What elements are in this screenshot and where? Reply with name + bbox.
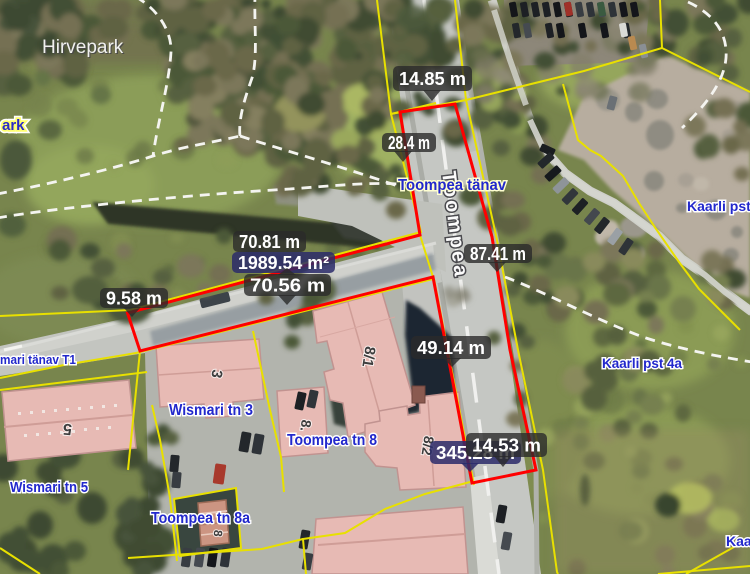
svg-text:Hirvepark: Hirvepark [42, 37, 124, 58]
svg-text:Toompea tn 8: Toompea tn 8 [287, 432, 377, 449]
svg-text:Kaarli pst 4a: Kaarli pst 4a [602, 355, 682, 371]
svg-text:Toompea tänav: Toompea tänav [398, 177, 506, 194]
svg-text:Wismari tn 5: Wismari tn 5 [10, 479, 88, 496]
svg-text:28.4 m: 28.4 m [388, 133, 430, 153]
svg-text:Wismari tn 3: Wismari tn 3 [169, 402, 253, 419]
svg-text:5: 5 [62, 420, 72, 438]
svg-text:14.53 m: 14.53 m [472, 436, 541, 456]
svg-text:14.85 m: 14.85 m [399, 69, 466, 89]
svg-text:ark: ark [2, 117, 25, 134]
svg-text:Kaarli ps: Kaarli ps [726, 533, 750, 549]
svg-text:70.81 m: 70.81 m [239, 232, 300, 252]
svg-text:1989.54 m²: 1989.54 m² [238, 253, 329, 273]
svg-text:Kaarli pst 4: Kaarli pst 4 [687, 198, 750, 214]
svg-text:9.58 m: 9.58 m [106, 289, 162, 309]
svg-text:mari tänav T1: mari tänav T1 [0, 352, 76, 367]
svg-text:8.: 8. [297, 419, 314, 433]
svg-text:49.14 m: 49.14 m [417, 338, 485, 358]
svg-text:87.41 m: 87.41 m [470, 244, 526, 264]
svg-text:Toompea tn 8a: Toompea tn 8a [151, 510, 250, 527]
svg-text:70.56 m: 70.56 m [250, 276, 325, 296]
svg-text:8/1: 8/1 [358, 345, 378, 368]
